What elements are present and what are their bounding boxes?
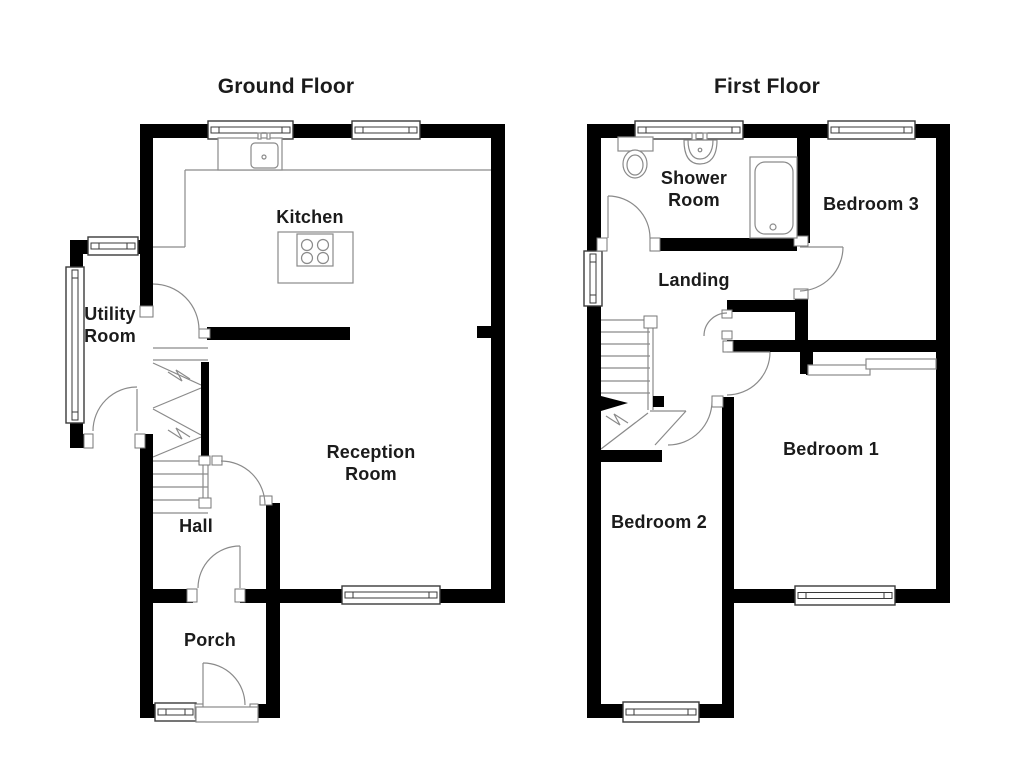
window [635,121,743,139]
door-swing [93,387,137,431]
floorplan-svg [0,0,1024,768]
door-frame [140,306,153,317]
window [795,586,895,605]
door-frame [650,238,660,251]
wardrobe [808,365,870,375]
door-swing [221,461,265,505]
door-frame [722,331,732,339]
door-swing [608,196,650,238]
plan-line [153,409,201,435]
wall [201,362,209,460]
door-frame [199,456,210,465]
window [828,121,915,139]
wall [266,503,280,718]
ground-floor-title: Ground Floor [218,74,355,100]
wall [727,340,950,352]
door-swing [800,247,843,291]
wall [140,250,153,315]
door-frame [199,329,210,338]
wall [477,326,493,338]
window [208,121,293,139]
door-swing [168,428,190,439]
room-label-bedroom1: Bedroom 1 [783,439,879,461]
door-frame [235,589,245,602]
room-label-kitchen: Kitchen [276,207,343,229]
room-label-bedroom2: Bedroom 2 [611,512,707,534]
door-swing [727,352,770,395]
fixture-rect [196,707,258,722]
door-frame [84,434,93,448]
door-frame [260,496,272,505]
wall [727,300,797,312]
door-frame [722,310,732,318]
stair-break-mark [601,396,628,411]
door-frame [712,396,723,407]
door-swing [203,663,245,705]
wall [653,396,664,407]
door-swing [606,414,628,425]
plan-line [655,411,686,445]
window [155,703,196,721]
toilet [627,155,643,175]
plan-line [153,388,201,408]
wall [595,450,662,462]
door-frame [723,341,733,352]
door-frame [644,316,657,328]
room-label-porch: Porch [184,630,236,652]
window [88,237,138,255]
wall [587,124,601,718]
wall [491,124,505,603]
room-label-hall: Hall [179,516,213,538]
door-frame [187,589,197,602]
fixture-rect [258,133,261,139]
room-label-bedroom3: Bedroom 3 [823,194,919,216]
door-swing [198,546,240,588]
basin [688,140,713,159]
wall [655,238,797,251]
room-label-reception: Reception Room [327,442,416,486]
fixture-rect [703,133,707,140]
room-label-landing: Landing [658,270,729,292]
first-floor-title: First Floor [714,74,820,100]
window [352,121,420,139]
window [66,267,84,423]
wall [140,434,153,718]
floorplan-page: Ground FloorFirst FloorKitchenUtility Ro… [0,0,1024,768]
fixture-rect [692,133,696,140]
door-frame [597,238,607,251]
wall [140,124,505,138]
fixture-circle [698,148,702,152]
wardrobe [866,359,936,369]
fixture-rect [755,162,793,234]
room-label-shower: Shower Room [661,168,727,212]
door-frame [135,434,145,448]
wall [722,397,734,710]
wall [797,124,810,243]
wall [140,124,153,250]
door-swing [153,284,199,330]
plan-line [153,363,201,385]
window [342,586,440,604]
fixture-rect [618,137,653,151]
door-frame [199,498,211,508]
window [584,251,602,306]
wall [207,327,350,340]
room-label-utility: Utility Room [84,304,136,348]
plan-line [601,413,648,449]
fixture-rect [267,133,270,139]
plan-line [153,437,201,457]
wall [936,124,950,603]
door-frame [212,456,222,465]
wall [258,704,280,718]
